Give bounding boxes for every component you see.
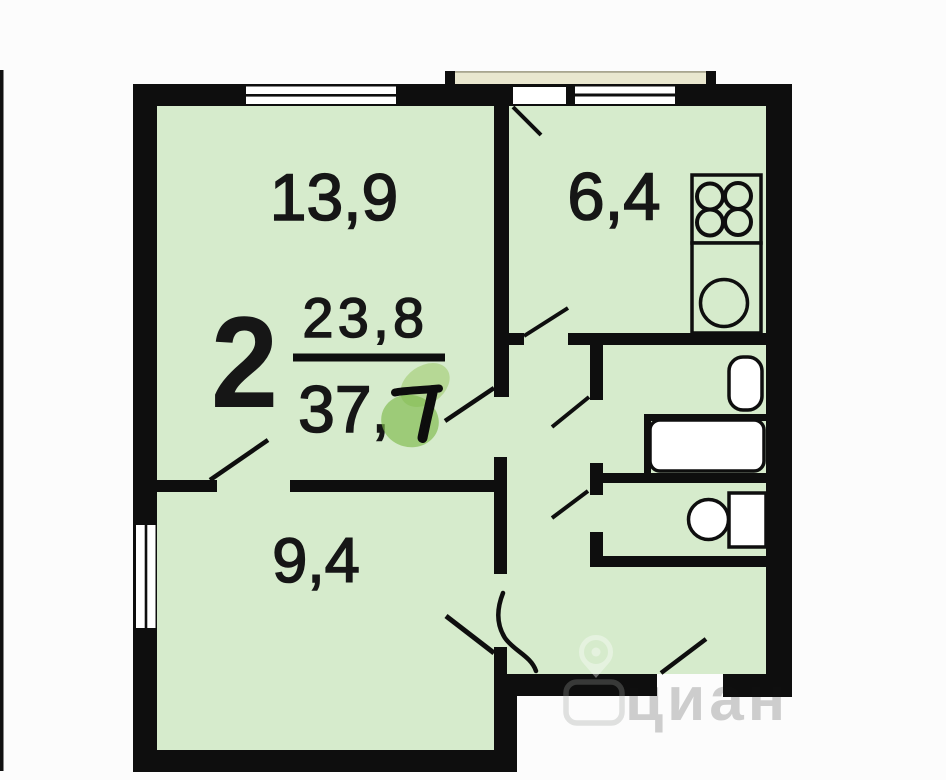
svg-text:6,4: 6,4 [567, 160, 660, 235]
svg-text:2: 2 [211, 289, 278, 435]
svg-text:13,9: 13,9 [270, 160, 398, 234]
svg-text:23,8: 23,8 [302, 287, 428, 349]
svg-text:37,: 37, [298, 372, 390, 446]
svg-text:9,4: 9,4 [272, 526, 360, 596]
svg-text:циан: циан [625, 665, 789, 734]
